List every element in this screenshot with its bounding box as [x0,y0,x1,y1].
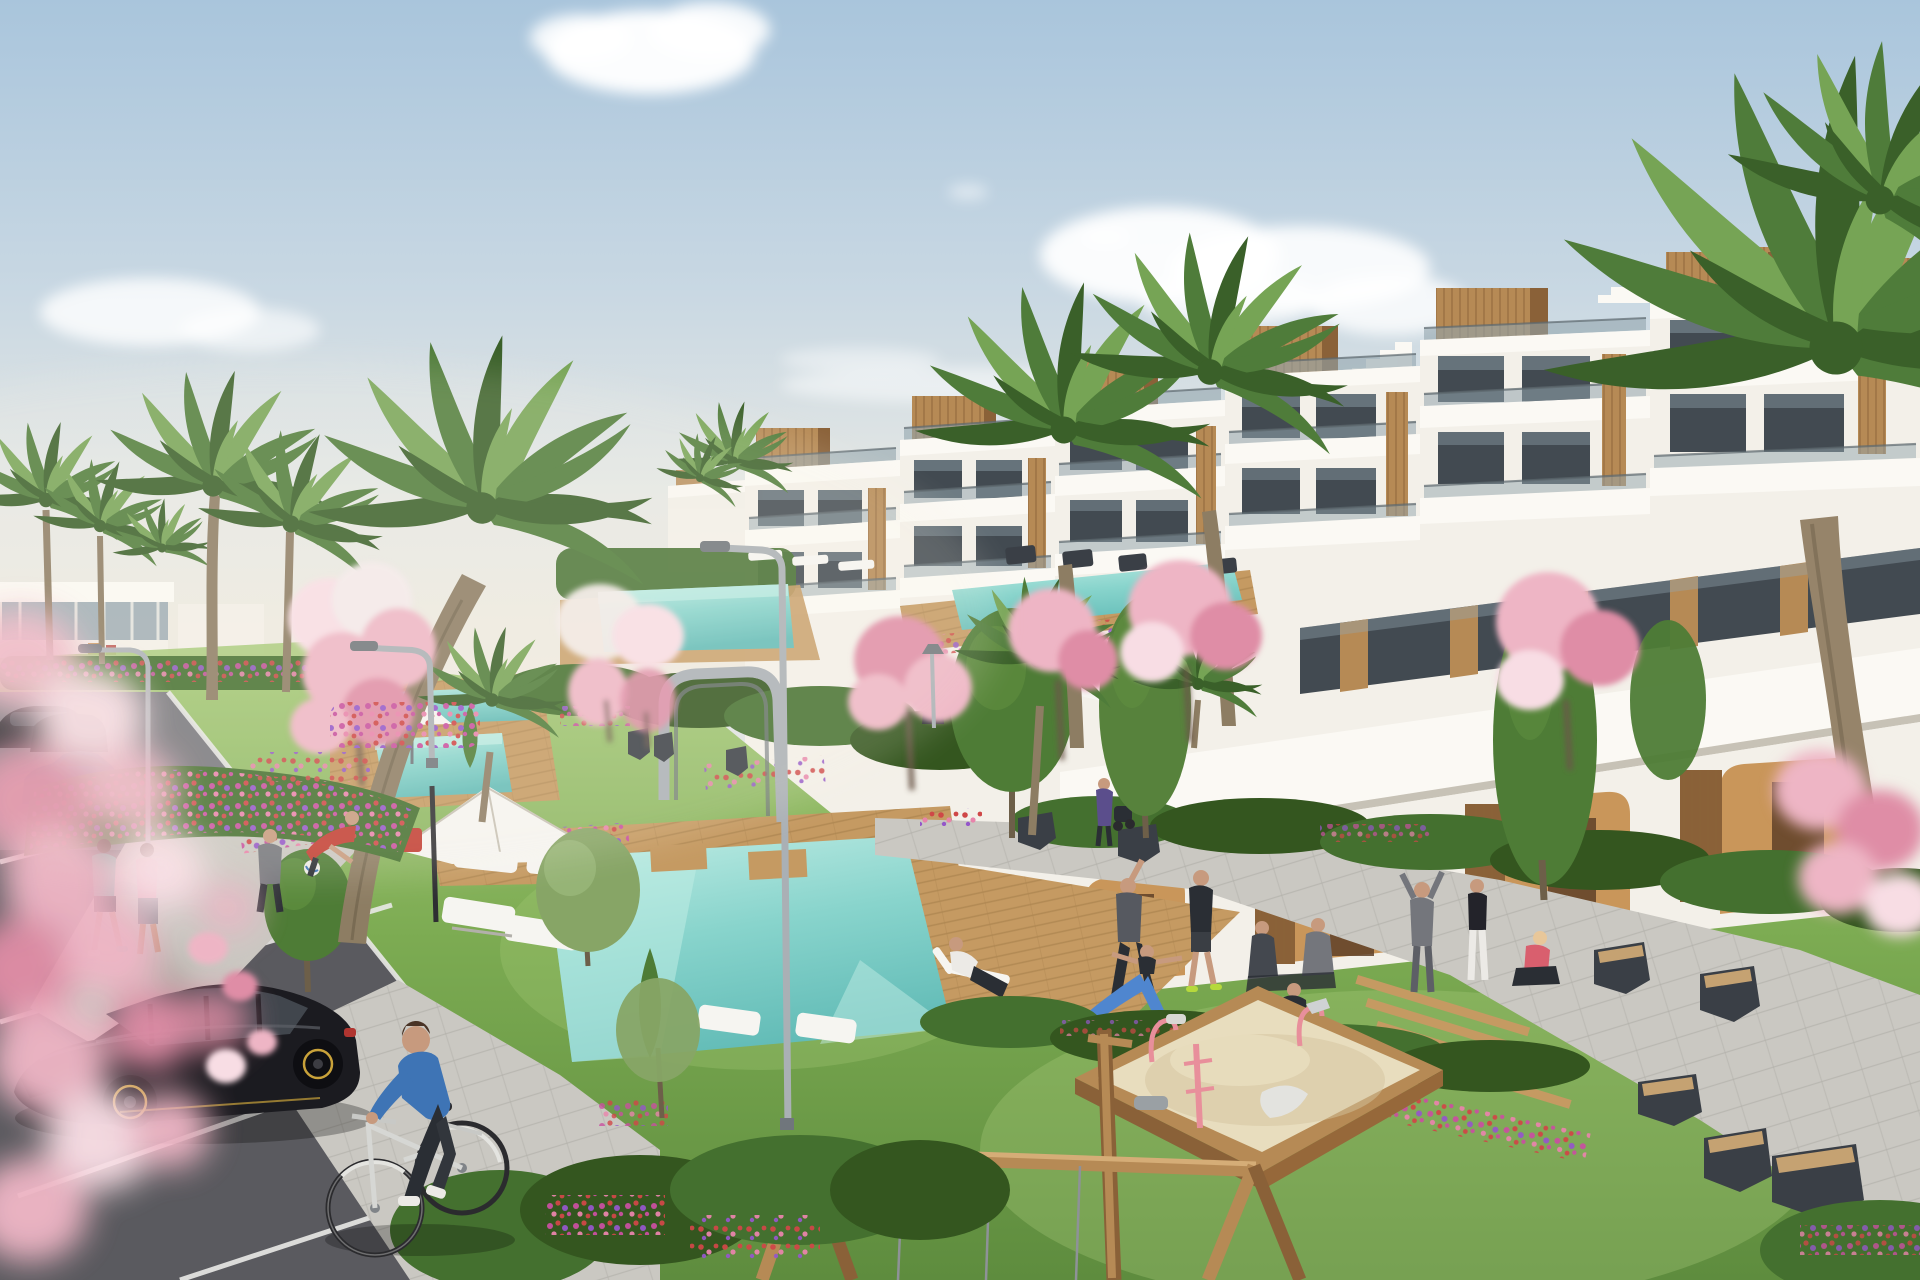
render-image [0,0,1920,1280]
pool-step-island [650,843,707,872]
small-tree-right [1630,620,1706,780]
pool-step-island-2 [748,849,807,880]
